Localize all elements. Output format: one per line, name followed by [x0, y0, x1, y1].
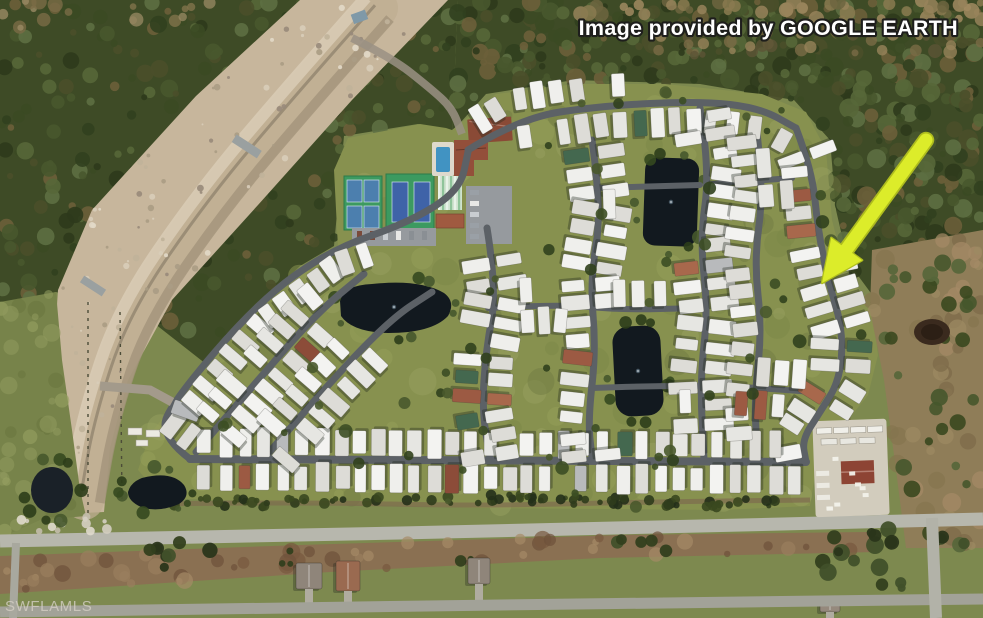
mobile-home	[408, 463, 422, 493]
mobile-home	[539, 430, 555, 455]
mobile-home	[220, 463, 235, 491]
car	[470, 190, 479, 195]
rv	[859, 437, 875, 444]
mobile-home	[371, 426, 388, 455]
mobile-home	[484, 464, 500, 489]
satellite-image: Image provided by GOOGLE EARTH SWFLAMLS	[0, 0, 983, 618]
mobile-home	[753, 148, 772, 181]
car	[470, 223, 479, 228]
rv	[851, 426, 866, 433]
mobile-home	[445, 462, 462, 493]
storage-yard	[812, 419, 889, 518]
mobile-home	[789, 359, 808, 392]
tennis-court	[364, 180, 379, 202]
mobile-home	[723, 423, 752, 441]
mobile-home	[428, 463, 444, 493]
mobile-home	[808, 355, 840, 372]
rv	[817, 428, 832, 435]
mobile-home	[635, 428, 650, 459]
mobile-home	[451, 350, 482, 366]
tennis-court	[347, 180, 362, 202]
mobile-home	[631, 110, 647, 139]
car	[470, 234, 479, 239]
mobile-home	[673, 465, 688, 491]
mobile-home	[539, 464, 553, 491]
rv	[128, 428, 142, 435]
mobile-home	[635, 461, 651, 493]
rv	[834, 427, 849, 434]
car	[396, 231, 401, 240]
mobile-home	[731, 171, 758, 189]
mobile-home	[390, 461, 406, 493]
mobile-home	[808, 335, 840, 351]
mobile-home	[563, 331, 590, 350]
mobile-home	[609, 73, 626, 99]
mobile-home	[788, 464, 804, 495]
rv	[821, 438, 837, 445]
mobile-home	[783, 221, 816, 240]
mobile-home	[671, 258, 699, 277]
mobile-home	[610, 112, 628, 141]
mobile-home	[671, 416, 699, 435]
mobile-home	[592, 445, 621, 462]
mobile-home	[843, 356, 872, 374]
mobile-home	[648, 108, 666, 141]
pond	[31, 467, 73, 513]
mobile-home	[726, 280, 754, 300]
mobile-home	[690, 466, 705, 491]
mobile-home	[753, 357, 771, 390]
small-building	[436, 214, 464, 228]
mobile-home	[732, 391, 749, 419]
mobile-home	[535, 306, 551, 337]
mobile-home	[710, 462, 726, 494]
mobile-home	[777, 180, 795, 212]
mobile-home	[519, 431, 536, 456]
mobile-home	[371, 462, 387, 490]
rv	[136, 440, 148, 446]
mobile-home	[427, 427, 444, 459]
mobile-home	[755, 184, 774, 210]
mobile-home	[336, 463, 353, 489]
car	[470, 212, 479, 217]
mobile-home	[617, 463, 633, 494]
mobile-home	[769, 428, 783, 458]
mobile-home	[485, 370, 513, 388]
mobile-home	[558, 277, 584, 293]
mobile-home	[722, 265, 750, 283]
mobile-home	[747, 463, 763, 493]
rv	[868, 426, 883, 433]
driveway	[475, 584, 483, 600]
mobile-home	[557, 430, 586, 447]
mobile-home	[389, 428, 405, 456]
mobile-home	[673, 335, 699, 351]
mobile-home	[557, 388, 585, 407]
mobile-home	[520, 463, 535, 493]
side-road	[932, 518, 936, 618]
mobile-home	[315, 459, 332, 491]
pond	[128, 475, 187, 509]
mobile-home	[771, 360, 790, 389]
mobile-home	[691, 431, 708, 456]
mobile-home	[239, 463, 253, 489]
mobile-home	[651, 281, 666, 309]
swimming-pool	[436, 147, 450, 172]
mobile-home	[517, 277, 533, 305]
mls-watermark: SWFLAMLS	[5, 598, 92, 615]
mobile-home	[557, 407, 583, 424]
tennis-court	[347, 206, 362, 228]
mobile-home	[610, 279, 626, 309]
mobile-home	[629, 280, 645, 310]
mobile-home	[575, 463, 589, 491]
mobile-home	[844, 337, 872, 353]
car	[470, 201, 479, 206]
mobile-home	[596, 462, 611, 492]
attribution-text: Image provided by GOOGLE EARTH	[579, 16, 958, 40]
car	[422, 231, 427, 240]
tennis-court	[392, 182, 408, 222]
mobile-home	[256, 461, 272, 490]
mobile-home	[550, 308, 568, 336]
mobile-home	[730, 462, 744, 493]
mobile-home	[197, 463, 213, 490]
mobile-home	[667, 355, 697, 373]
mobile-home	[778, 163, 808, 179]
driveway	[826, 612, 834, 618]
mobile-home	[769, 464, 786, 495]
car	[409, 231, 414, 240]
mobile-home	[353, 428, 369, 453]
mobile-home	[674, 312, 704, 333]
mobile-home	[711, 429, 725, 457]
mobile-home	[677, 389, 692, 415]
rv	[840, 438, 856, 445]
mobile-home	[729, 319, 758, 338]
mobile-home	[484, 390, 512, 406]
tennis-court	[364, 206, 379, 228]
rv	[146, 430, 160, 437]
mobile-home	[450, 386, 482, 404]
mobile-home	[769, 394, 785, 420]
mobile-home	[453, 367, 479, 384]
mobile-home	[518, 310, 535, 336]
aerial-photo: Image provided by GOOGLE EARTH SWFLAMLS	[0, 0, 983, 618]
mobile-home	[503, 465, 520, 491]
